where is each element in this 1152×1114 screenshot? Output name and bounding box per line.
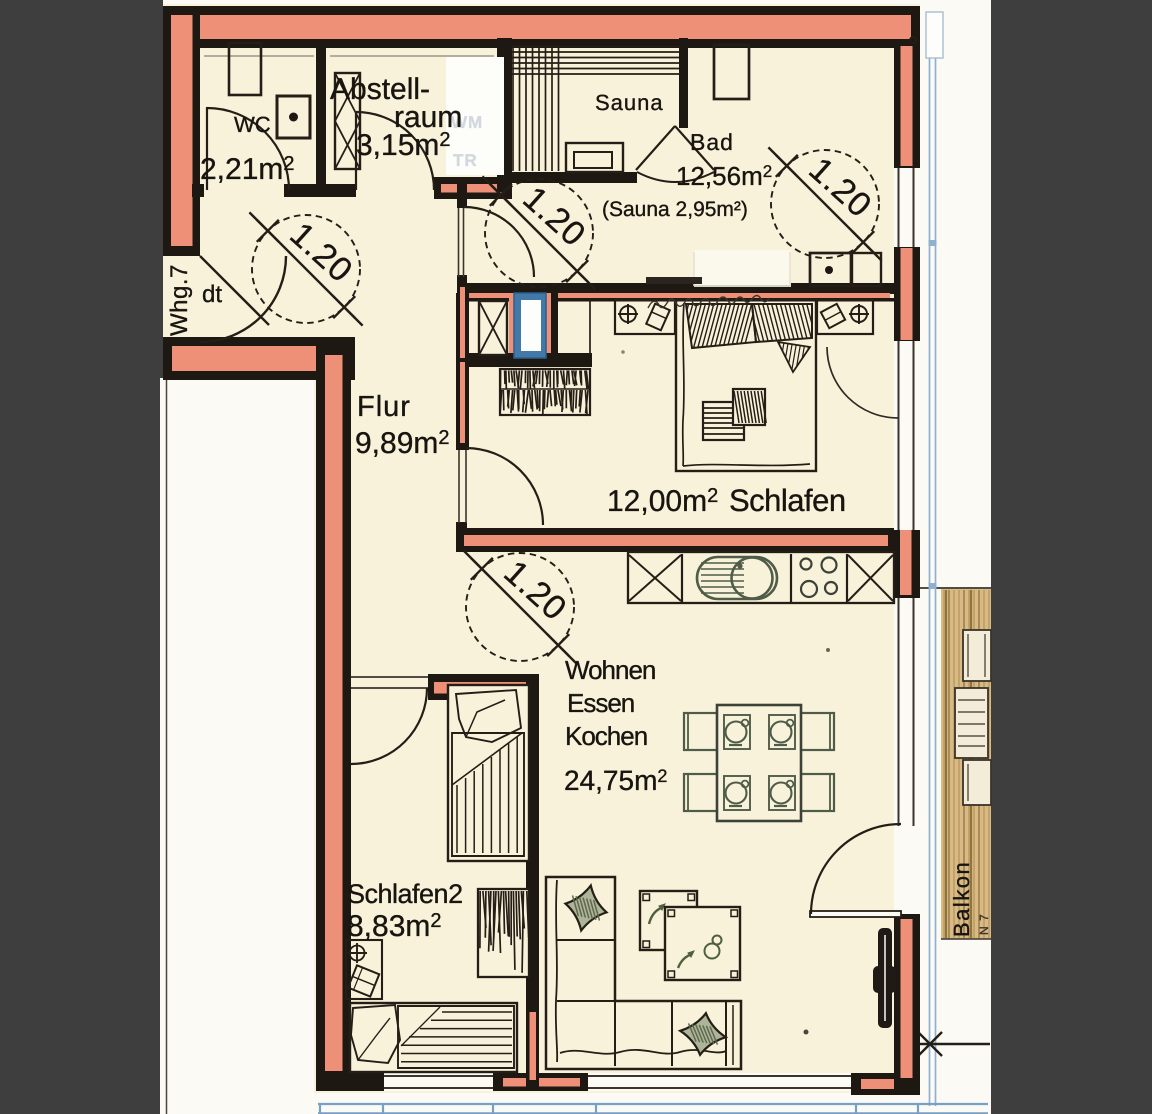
svg-text:8,83m2: 8,83m2: [347, 910, 442, 943]
svg-text:N 7: N 7: [977, 913, 991, 935]
svg-text:Balkon: Balkon: [949, 861, 974, 937]
svg-text:Wohnen: Wohnen: [565, 655, 655, 685]
svg-text:3,15m2: 3,15m2: [356, 129, 451, 162]
svg-text:9,89m2: 9,89m2: [355, 427, 450, 460]
svg-text:TR: TR: [453, 151, 478, 170]
svg-text:WC: WC: [234, 112, 271, 137]
svg-text:24,75m2: 24,75m2: [564, 765, 667, 796]
svg-text:Flur: Flur: [357, 391, 411, 423]
svg-text:12,56m2: 12,56m2: [676, 161, 772, 191]
svg-text:dt: dt: [202, 281, 222, 308]
svg-text:Kochen: Kochen: [565, 721, 647, 751]
svg-text:2,21m2: 2,21m2: [200, 153, 295, 186]
svg-text:Whg.7: Whg.7: [166, 264, 193, 336]
svg-text:Essen: Essen: [567, 688, 634, 718]
svg-text:Schlafen: Schlafen: [729, 483, 846, 518]
svg-text:Schlafen2: Schlafen2: [347, 879, 463, 909]
svg-text:Sauna: Sauna: [595, 90, 664, 115]
svg-text:(Sauna 2,95m²): (Sauna 2,95m²): [602, 198, 748, 221]
svg-text:Bad: Bad: [690, 129, 734, 155]
svg-text:12,00m2: 12,00m2: [607, 485, 718, 518]
